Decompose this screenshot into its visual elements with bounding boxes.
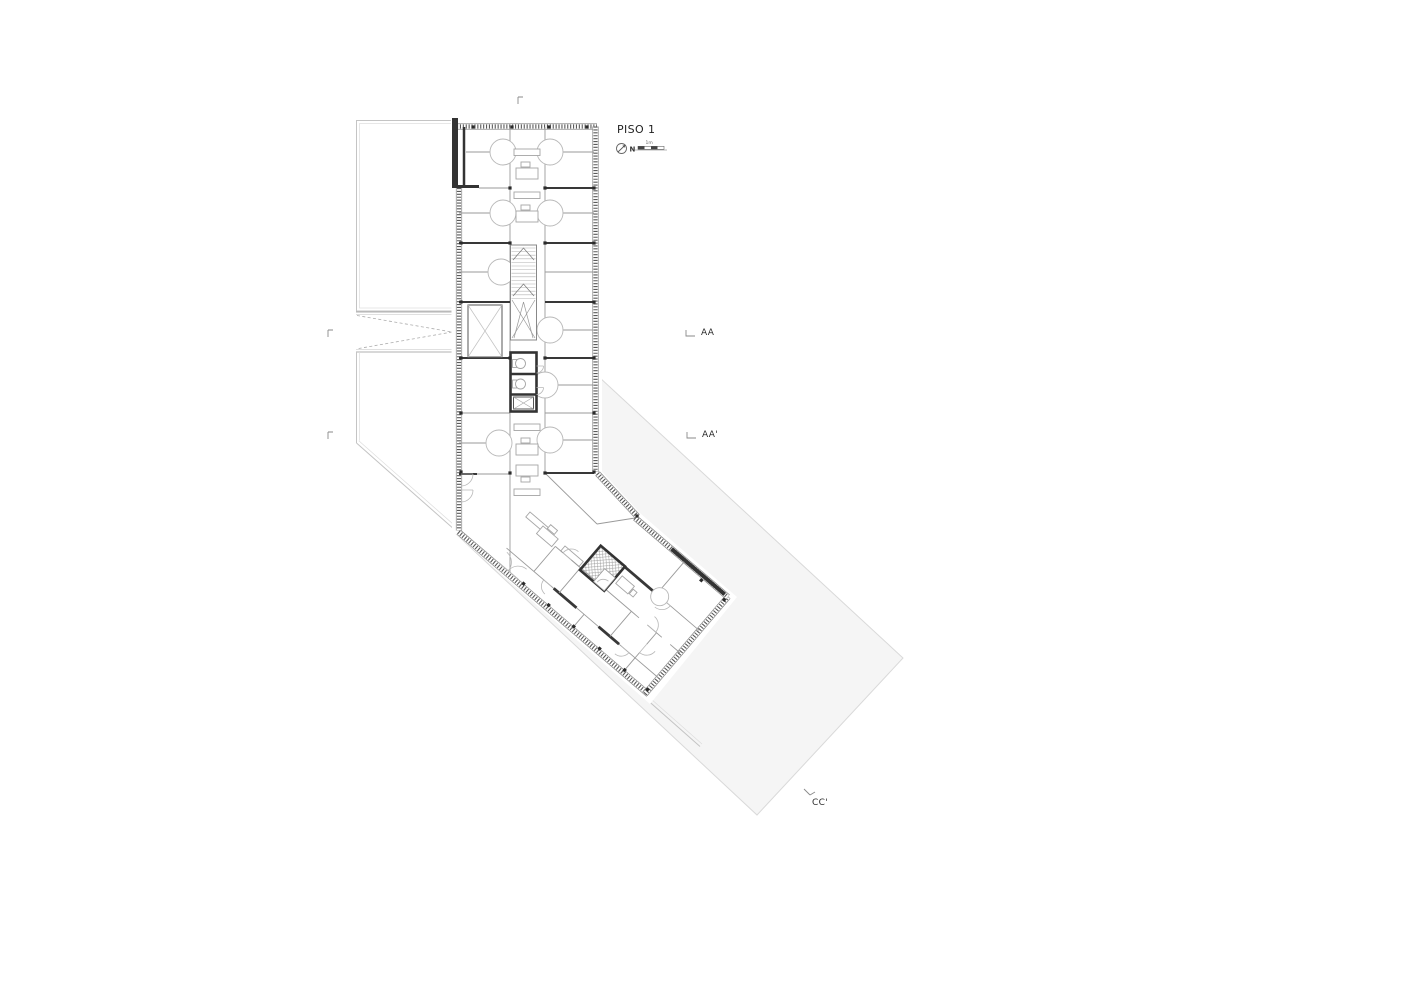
floor-plan-drawing: PISO 1 N 1m AA AA' CC'	[0, 0, 1416, 1000]
reference-mark-top	[518, 97, 523, 104]
section-label-cc-prime: CC'	[812, 798, 828, 808]
ramp	[356, 312, 456, 352]
north-label: N	[630, 146, 636, 154]
toilet	[513, 379, 526, 389]
scale-label: 1m	[646, 140, 653, 146]
reference-mark-left-upper	[328, 330, 333, 337]
section-label-aa-prime: AA'	[702, 430, 718, 440]
section-marker-cc-prime: CC'	[804, 789, 828, 808]
elevator	[514, 397, 534, 409]
reference-mark-left-lower	[328, 432, 333, 439]
north-arrow-icon	[617, 144, 627, 154]
section-marker-aa: AA	[686, 328, 715, 338]
page-title: PISO 1	[617, 123, 655, 136]
section-marker-aa-prime: AA'	[687, 430, 718, 440]
floor-plan-page: PISO 1 N 1m AA AA' CC'	[0, 0, 1416, 1000]
void-shaft	[468, 305, 502, 357]
toilet	[513, 359, 526, 369]
section-label-aa: AA	[701, 328, 715, 338]
stair-core	[511, 245, 537, 340]
scale-bar: 1m	[635, 140, 667, 150]
